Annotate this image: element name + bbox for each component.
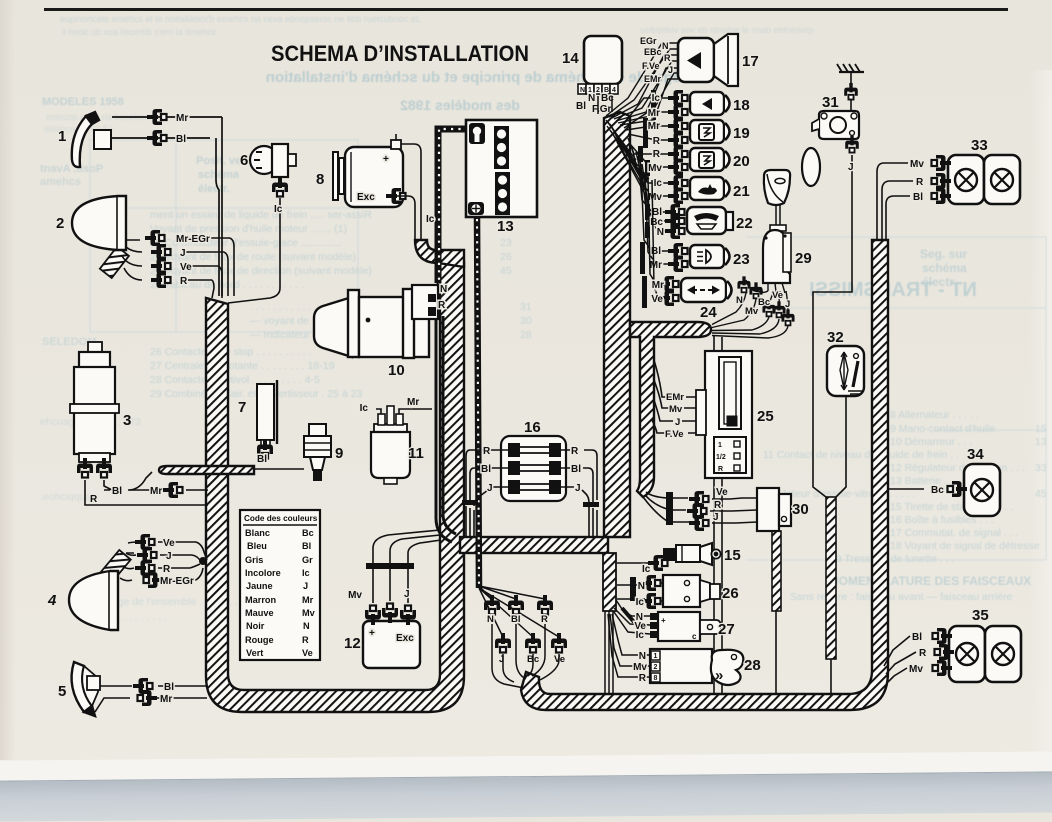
svg-text:R: R [438, 300, 446, 311]
svg-text:16: 16 [524, 419, 541, 436]
svg-text:17 Commutat. de signal . .: 17 Commutat. de signal . . . [890, 527, 1018, 539]
svg-text:Exc: Exc [396, 633, 414, 644]
svg-text:R: R [653, 136, 661, 147]
svg-text:Mv: Mv [909, 664, 923, 675]
svg-text:Ve: Ve [651, 294, 663, 305]
svg-text:Vert: Vert [246, 648, 263, 658]
svg-text:électr.: électr. [922, 275, 957, 289]
svg-text:Ve: Ve [163, 538, 175, 549]
svg-text:R: R [639, 673, 647, 684]
svg-text:26: 26 [500, 251, 512, 263]
svg-text:Blanc: Blanc [245, 528, 270, 538]
svg-text:J: J [675, 417, 680, 428]
svg-text:33: 33 [1035, 462, 1047, 474]
svg-text:13: 13 [1035, 436, 1047, 448]
svg-text:31: 31 [822, 94, 839, 111]
svg-text:selbertiov sov eb stneme le sn: selbertiov sov eb stneme le snab eetnese… [640, 25, 814, 35]
svg-text:tnavA .tisoP: tnavA .tisoP [40, 163, 103, 175]
svg-text:NOMENCLATURE DES FAISCEAUX: NOMENCLATURE DES FAISCEAUX [830, 574, 1031, 588]
svg-text:Sans repère : faisceau ava: Sans repère : faisceau avant — faisceau … [790, 591, 1013, 603]
svg-text:schéma: schéma [198, 169, 240, 181]
svg-text:Mv: Mv [633, 662, 647, 673]
svg-text:11 Contact de niveau de liqui: 11 Contact de niveau de liquide de frein… [763, 449, 959, 461]
svg-text:1/2: 1/2 [716, 454, 726, 461]
svg-text:Mr: Mr [648, 108, 660, 119]
svg-text:27: 27 [718, 621, 735, 638]
svg-text:22: 22 [736, 215, 753, 232]
svg-text:J: J [180, 248, 186, 259]
svg-text:EGr: EGr [640, 36, 657, 46]
svg-text:ment un essieu de liquide: ment un essieu de liquide de frein .....… [150, 209, 372, 221]
svg-text:N: N [638, 581, 645, 592]
svg-text:R: R [541, 614, 548, 625]
svg-text:R: R [163, 564, 171, 575]
svg-text:Mv: Mv [745, 306, 759, 317]
svg-text:18: 18 [733, 97, 750, 114]
svg-text:21: 21 [733, 183, 750, 200]
svg-text:2: 2 [654, 664, 658, 671]
svg-text:Ic: Ic [360, 403, 369, 414]
svg-text:7: 7 [238, 399, 246, 416]
svg-text:8: 8 [654, 675, 658, 682]
svg-text:33: 33 [971, 137, 988, 154]
svg-text:8: 8 [316, 171, 324, 188]
svg-text:1: 1 [718, 442, 722, 449]
svg-text:Mr: Mr [650, 260, 662, 271]
svg-text:Ic: Ic [636, 630, 645, 641]
svg-text:2: 2 [596, 87, 600, 94]
svg-text:18 Voyant de signal de dé: 18 Voyant de signal de détresse [890, 540, 1040, 552]
svg-text:Ve: Ve [716, 487, 728, 498]
svg-text:Mv: Mv [669, 404, 683, 415]
svg-text:20: 20 [733, 153, 750, 170]
svg-text:17: 17 [742, 53, 759, 70]
svg-text:Rouge: Rouge [245, 635, 274, 645]
svg-text:+: + [383, 154, 389, 165]
svg-text:Mr: Mr [176, 113, 188, 124]
svg-text:N: N [657, 227, 664, 238]
svg-text:23: 23 [500, 237, 512, 249]
svg-text:32: 32 [827, 329, 844, 346]
svg-text:Mr: Mr [160, 694, 172, 705]
svg-text:Ic: Ic [642, 564, 651, 575]
svg-text:Seg. sur: Seg. sur [920, 247, 968, 261]
svg-text:+: + [661, 616, 666, 625]
svg-text:15: 15 [1035, 423, 1047, 435]
svg-text:li hede ub xua liecertib s'err: li hede ub xua liecertib s'erri la timeh… [62, 27, 217, 37]
svg-text:Gris: Gris [245, 555, 263, 565]
svg-text:14: 14 [562, 50, 579, 67]
svg-text:Bc: Bc [931, 485, 944, 496]
svg-text:Bl: Bl [481, 464, 491, 475]
svg-text:26 Contacteur de stop . . .: 26 Contacteur de stop . . . . . . . . . … [150, 346, 312, 358]
svg-text:R: R [180, 276, 188, 287]
svg-text:28 Contacteur antivol . . . .: 28 Contacteur antivol . . . . . . . . . … [150, 374, 320, 386]
svg-text:R: R [916, 177, 924, 188]
svg-text:électr.: électr. [198, 183, 230, 195]
svg-text:.eohciqqua: .eohciqqua [40, 491, 92, 503]
svg-text:Bl: Bl [302, 541, 311, 551]
svg-text:4: 4 [47, 592, 57, 609]
svg-text:Bl: Bl [176, 134, 186, 145]
svg-text:Ic: Ic [652, 93, 661, 104]
svg-text:26: 26 [722, 585, 739, 602]
svg-text:N: N [662, 41, 669, 51]
svg-text:N: N [303, 621, 310, 631]
svg-text:eupinortcele emehcs el te noit: eupinortcele emehcs el te noitallatsni'b… [60, 14, 421, 24]
svg-text:R: R [664, 53, 671, 63]
svg-text:R: R [302, 635, 309, 645]
svg-text:Bc: Bc [302, 528, 314, 538]
svg-text:Bl: Bl [112, 486, 122, 497]
svg-text:N: N [580, 87, 585, 94]
svg-text:J: J [166, 551, 172, 562]
svg-text:1: 1 [654, 653, 658, 660]
svg-text:R: R [483, 446, 491, 457]
svg-text:R: R [571, 446, 579, 457]
svg-text:J: J [487, 483, 493, 494]
svg-text:5: 5 [58, 683, 66, 700]
svg-text:amehcs: amehcs [40, 176, 81, 188]
svg-text:30: 30 [792, 501, 809, 518]
svg-text:29: 29 [795, 250, 812, 267]
svg-text:Mv: Mv [302, 608, 316, 618]
svg-text:Exc: Exc [357, 192, 375, 203]
svg-text:Marron: Marron [245, 595, 277, 605]
svg-text:J: J [668, 65, 673, 75]
svg-text:28: 28 [744, 657, 761, 674]
svg-text:J: J [713, 512, 719, 523]
svg-text:19: 19 [733, 125, 750, 142]
svg-text:Ic: Ic [274, 204, 283, 215]
svg-text:Mv: Mv [648, 192, 662, 203]
svg-text:+: + [369, 628, 375, 639]
svg-text:35: 35 [972, 607, 989, 624]
svg-text:19 Tressage de lunette . .: 19 Tressage de lunette . . . [830, 553, 954, 565]
svg-text:des modèles 1982: des modèles 1982 [400, 97, 520, 113]
svg-text:12 Régulateur de tension .: 12 Régulateur de tension . . . [890, 462, 1025, 474]
svg-text:R: R [714, 500, 722, 511]
svg-text:13: 13 [497, 218, 514, 235]
svg-text:Mv: Mv [648, 163, 662, 174]
svg-text:Bl: Bl [576, 101, 586, 112]
svg-text:F.Ve: F.Ve [665, 429, 684, 440]
svg-text:12: 12 [344, 635, 361, 652]
svg-text:EBc: EBc [644, 47, 662, 57]
svg-text:schéma: schéma [922, 261, 967, 275]
svg-text:Bl: Bl [913, 192, 923, 203]
svg-text:25: 25 [757, 408, 774, 425]
svg-text:J: J [303, 581, 308, 591]
svg-text:Incolore: Incolore [245, 568, 281, 578]
svg-text:Mr: Mr [150, 486, 162, 497]
svg-text:Mv: Mv [348, 590, 362, 601]
svg-text:Mv: Mv [910, 159, 924, 170]
svg-text:F.Ve: F.Ve [642, 61, 660, 71]
svg-text:J: J [404, 589, 410, 600]
svg-text:J: J [575, 483, 581, 494]
svg-text:Mauve: Mauve [245, 608, 274, 618]
svg-text:Bl: Bl [571, 464, 581, 475]
svg-text:Bc: Bc [758, 297, 770, 308]
svg-text:31: 31 [520, 301, 532, 313]
svg-text:28: 28 [520, 329, 532, 341]
svg-text:Mr-EGr: Mr-EGr [176, 234, 210, 245]
svg-text:N: N [588, 93, 595, 104]
svg-text:24: 24 [700, 304, 717, 321]
svg-text:10: 10 [388, 362, 405, 379]
svg-text:27 Centrale clignotante . . .: 27 Centrale clignotante . . . . . . . . … [150, 360, 335, 372]
svg-text:Mr: Mr [302, 595, 314, 605]
svg-text:N: N [440, 284, 447, 295]
svg-text:9: 9 [335, 445, 343, 462]
svg-text:c: c [692, 632, 697, 641]
svg-text:EMr: EMr [666, 392, 684, 403]
svg-text:N: N [487, 614, 494, 625]
svg-text:Noir: Noir [246, 621, 265, 631]
svg-text:EMr: EMr [644, 74, 662, 84]
svg-text:Bl: Bl [912, 632, 922, 643]
svg-text:»: » [715, 667, 723, 684]
svg-text:R: R [718, 466, 723, 473]
svg-text:J: J [785, 299, 790, 310]
svg-text:Mr: Mr [407, 397, 419, 408]
svg-text:45: 45 [500, 265, 512, 277]
svg-text:Gr: Gr [302, 555, 313, 565]
svg-text:2: 2 [56, 215, 64, 232]
svg-text:30: 30 [520, 315, 532, 327]
svg-text:3: 3 [123, 412, 131, 429]
svg-text:Bl: Bl [257, 454, 267, 465]
svg-text:R: R [653, 149, 661, 160]
svg-text:N: N [639, 651, 646, 662]
svg-text:Ve: Ve [772, 290, 783, 301]
svg-text:Ic: Ic [426, 214, 435, 225]
svg-text:J: J [848, 162, 854, 173]
svg-text:Bleu: Bleu [247, 541, 267, 551]
svg-text:Ve: Ve [180, 262, 192, 273]
svg-text:Posit. ver: Posit. ver [196, 155, 246, 167]
svg-text:23: 23 [733, 251, 750, 268]
svg-text:R: R [90, 494, 98, 505]
svg-text:Ic: Ic [302, 568, 310, 578]
svg-text:Mr: Mr [648, 121, 660, 132]
svg-text:11: 11 [408, 445, 424, 462]
svg-text:Mr: Mr [652, 280, 664, 291]
svg-text:34: 34 [967, 446, 984, 463]
svg-text:Bl: Bl [511, 614, 521, 625]
svg-text:SCHEMA D’INSTALLATION: SCHEMA D’INSTALLATION [271, 41, 529, 66]
svg-text:R: R [919, 648, 927, 659]
svg-text:Code des couleurs: Code des couleurs [244, 514, 318, 523]
svg-text:MODELES 1958: MODELES 1958 [42, 96, 124, 108]
svg-text:9 Mano-contact d'huile: 9 Mano-contact d'huile [890, 423, 995, 435]
svg-text:15: 15 [724, 547, 741, 564]
svg-text:Mr-EGr: Mr-EGr [160, 576, 194, 587]
svg-text:25 Tableau de bord . . . . . .: 25 Tableau de bord . . . . . . . . . . . [150, 279, 304, 291]
svg-text:45: 45 [1035, 488, 1047, 500]
svg-text:Légende du schéma de principe: Légende du schéma de principe et du sché… [266, 69, 691, 86]
svg-text:Bl: Bl [164, 682, 174, 693]
svg-text:Ve: Ve [302, 648, 313, 658]
svg-text:10 Démarreur . . .: 10 Démarreur . . . [890, 436, 972, 448]
svg-text:Jaune: Jaune [246, 581, 273, 591]
svg-text:6: 6 [240, 152, 248, 169]
svg-text:Ic: Ic [636, 597, 645, 608]
svg-text:N: N [736, 295, 743, 306]
svg-text:8 Alternateur . . . . .: 8 Alternateur . . . . . [890, 409, 979, 421]
svg-text:Ic: Ic [654, 178, 663, 189]
svg-text:1: 1 [58, 128, 66, 145]
